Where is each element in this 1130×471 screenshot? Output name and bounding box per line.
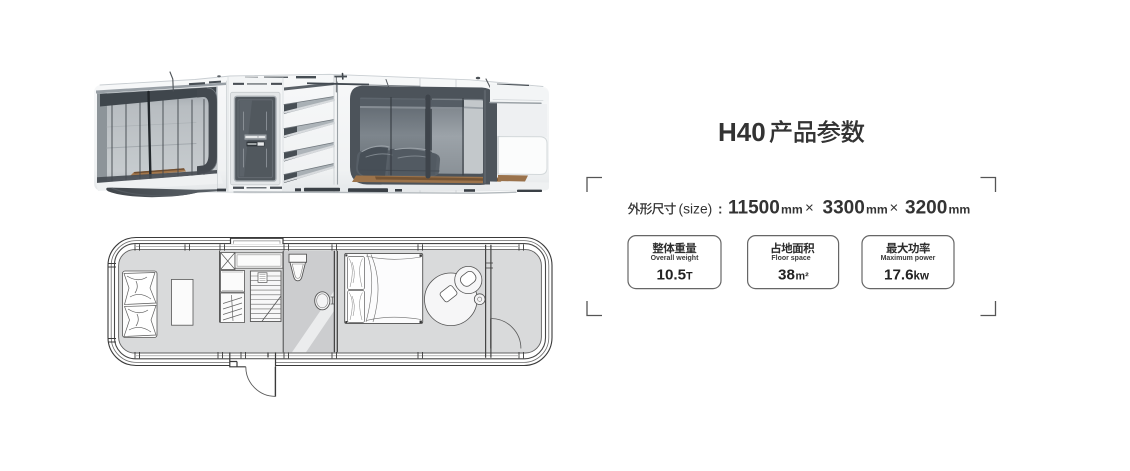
svg-text:m²: m²	[796, 270, 810, 282]
svg-text:×: ×	[890, 200, 899, 217]
svg-text:Maximum power: Maximum power	[881, 255, 936, 262]
svg-text::: :	[718, 202, 723, 217]
svg-text:3300: 3300	[823, 198, 865, 219]
svg-text:Overall weight: Overall weight	[651, 255, 700, 262]
svg-text:T: T	[686, 270, 693, 282]
svg-text:mm: mm	[866, 203, 888, 217]
svg-text:Floor space: Floor space	[771, 255, 810, 262]
svg-text:mm: mm	[949, 203, 971, 217]
svg-text:×: ×	[805, 200, 814, 217]
svg-text:H40: H40	[718, 117, 766, 147]
svg-text:11500: 11500	[728, 198, 780, 219]
svg-text:17.6: 17.6	[884, 266, 914, 283]
svg-text:kw: kw	[914, 269, 930, 282]
svg-text:38: 38	[778, 266, 795, 283]
svg-text:(size): (size)	[679, 202, 713, 217]
svg-text:10.5: 10.5	[657, 266, 687, 283]
svg-text:mm: mm	[781, 203, 803, 217]
svg-text:3200: 3200	[905, 198, 947, 219]
